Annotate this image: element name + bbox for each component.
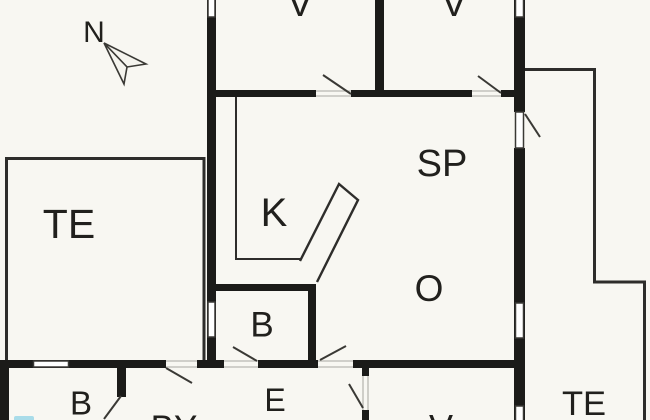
svg-text:B: B [250, 306, 273, 345]
svg-text:TE: TE [562, 385, 606, 420]
svg-text:E: E [264, 382, 285, 418]
svg-text:V: V [441, 0, 467, 25]
svg-text:K: K [261, 191, 288, 235]
svg-text:SP: SP [417, 143, 468, 185]
svg-text:B: B [70, 385, 92, 420]
svg-text:O: O [415, 268, 444, 309]
svg-text:N: N [83, 16, 105, 49]
svg-text:V: V [287, 0, 313, 25]
svg-text:BY: BY [151, 409, 198, 420]
svg-text:V: V [429, 407, 453, 420]
svg-text:TE: TE [43, 201, 95, 247]
